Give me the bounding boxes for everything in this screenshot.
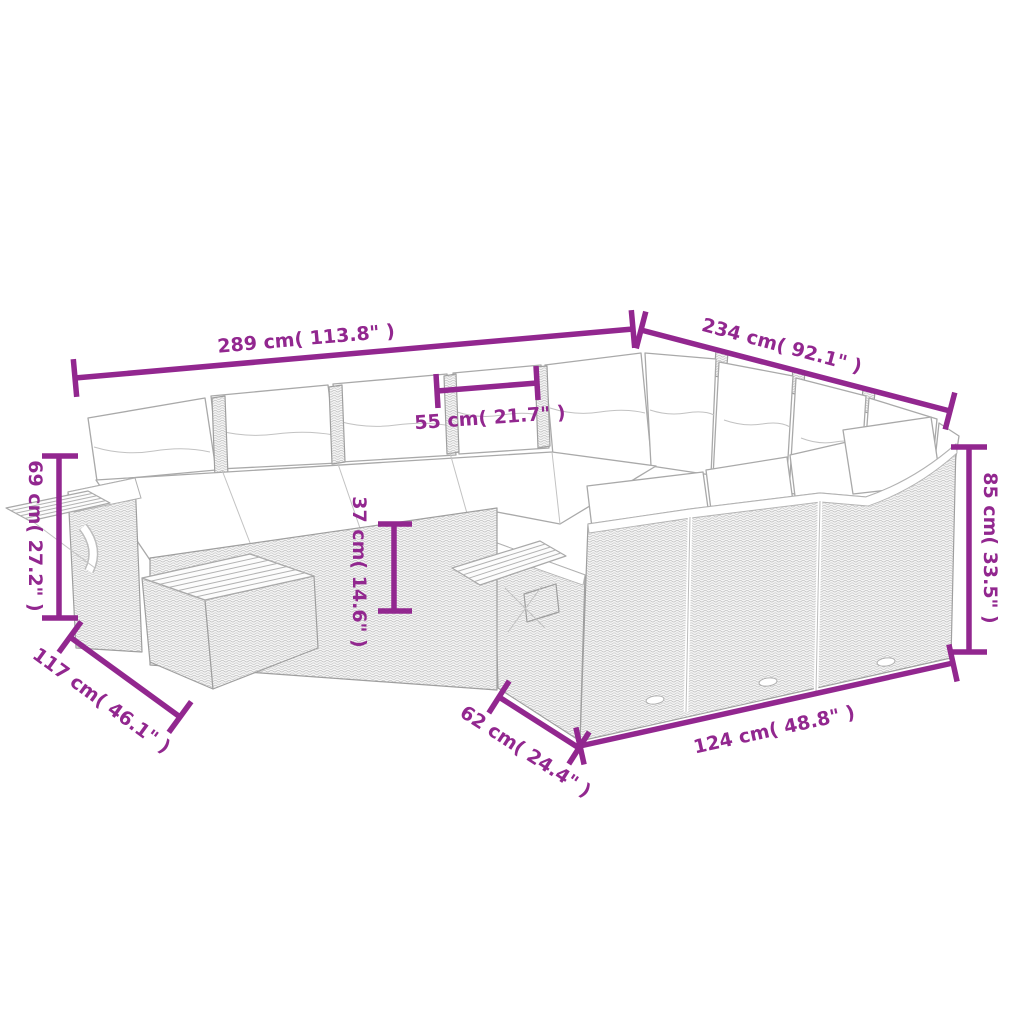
product-dimension-diagram: 289 cm( 113.8" ) 234 cm( 92.1" ) 55 cm( … <box>0 0 1024 1024</box>
dimension-label-seat-height: 37 cm( 14.6" ) <box>348 496 370 648</box>
dimension-label-back-height: 85 cm( 33.5" ) <box>979 472 1001 624</box>
dimension-back-height: 85 cm( 33.5" ) <box>951 447 1001 652</box>
diagram-canvas: 289 cm( 113.8" ) 234 cm( 92.1" ) 55 cm( … <box>0 0 1024 1024</box>
dimension-label-arm-height: 69 cm( 27.2" ) <box>24 460 46 612</box>
